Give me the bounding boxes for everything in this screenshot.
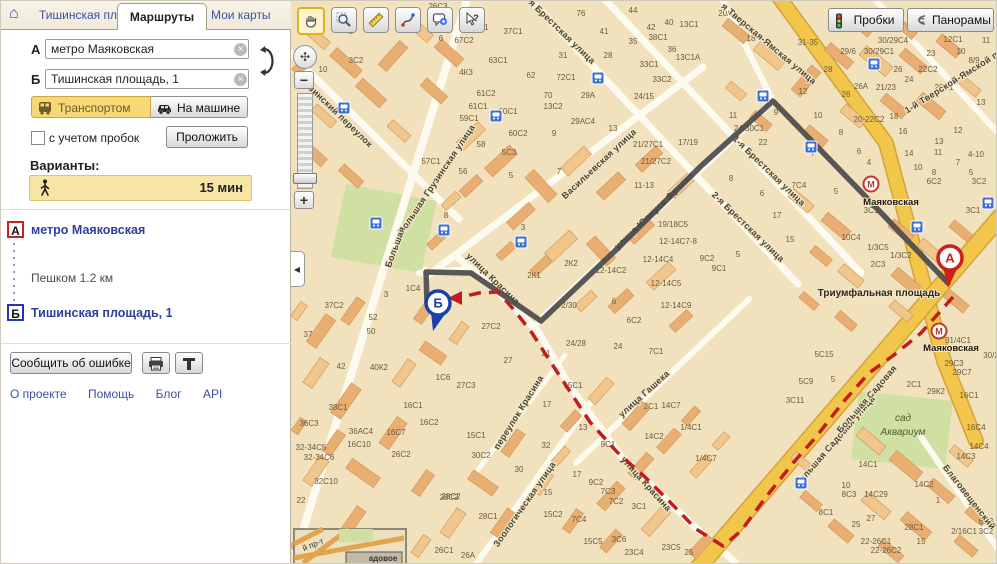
building-label: 6С2 bbox=[627, 316, 642, 325]
place-label: Аквариум bbox=[880, 427, 926, 438]
pedestrian-icon bbox=[38, 179, 52, 197]
building-label: 57С1 bbox=[421, 157, 441, 166]
building-label: 32 bbox=[542, 441, 551, 450]
building bbox=[810, 245, 833, 266]
building-label: 26А bbox=[461, 551, 476, 560]
building-label: 27С2 bbox=[481, 322, 501, 331]
building-label: 5 bbox=[831, 375, 836, 384]
building-label: 15С1 bbox=[466, 431, 486, 440]
building-label: 11 bbox=[934, 148, 943, 157]
building-label: 17 bbox=[773, 211, 782, 220]
building-label: 5С15 bbox=[814, 350, 834, 359]
building-label: 2К1 bbox=[527, 271, 541, 280]
building-label: 26 bbox=[842, 90, 851, 99]
building-label: 3С1 bbox=[632, 502, 647, 511]
comment-balloon-icon bbox=[432, 12, 448, 28]
building-label: 56 bbox=[459, 167, 468, 176]
building-label: 17 bbox=[543, 400, 552, 409]
building-label: 28С1 bbox=[904, 523, 924, 532]
building-label: 20-22С2 bbox=[854, 115, 885, 124]
building-label: 70 bbox=[544, 91, 553, 100]
building-label: 6 bbox=[439, 34, 444, 43]
building-label: 1 bbox=[936, 496, 941, 505]
building-label: 29С3 bbox=[944, 359, 964, 368]
map-canvas[interactable]: 125103С226С3667С267С137С163С14К361С261С1… bbox=[291, 1, 997, 564]
building-label: 3С2 bbox=[349, 56, 364, 65]
building-label: 5С9 bbox=[799, 377, 814, 386]
building-label: 24/28 bbox=[566, 339, 587, 348]
building-label: 67С2 bbox=[454, 36, 474, 45]
building-label: 16С7 bbox=[386, 428, 406, 437]
panoramas-button[interactable]: Панорамы bbox=[907, 8, 994, 32]
building-label: 28 bbox=[824, 65, 833, 74]
building-label: 35 bbox=[629, 37, 638, 46]
building-label: 3 bbox=[384, 290, 389, 299]
transport-stop-icon[interactable] bbox=[592, 72, 604, 84]
building-label: 16С10 bbox=[347, 440, 371, 449]
building-label: 21/23 bbox=[876, 83, 897, 92]
svg-text:М: М bbox=[867, 180, 875, 190]
street-label: 2-я Брестская улица bbox=[710, 190, 787, 265]
to-input[interactable] bbox=[45, 69, 249, 89]
building bbox=[355, 78, 386, 108]
building-label: 31 bbox=[559, 51, 568, 60]
building-label: 37С1 bbox=[503, 27, 523, 36]
zoom-select-tool-button[interactable] bbox=[331, 7, 357, 33]
building-label: 1/4С1 bbox=[680, 423, 702, 432]
swap-points-icon[interactable] bbox=[257, 45, 283, 77]
building-label: 30/29С1 bbox=[864, 47, 895, 56]
transport-stop-icon[interactable] bbox=[911, 221, 923, 233]
link-api[interactable]: API bbox=[203, 387, 222, 401]
building-label: 5С3 bbox=[502, 148, 517, 157]
building bbox=[828, 519, 854, 543]
building-label: 14С3 bbox=[956, 452, 976, 461]
building-label: 13 bbox=[609, 124, 618, 133]
building-label: 8 bbox=[932, 168, 937, 177]
building-label: 6 bbox=[612, 297, 617, 306]
svg-text:?: ? bbox=[473, 13, 479, 23]
place-label: сад bbox=[895, 413, 912, 424]
building-label: 37С2 bbox=[324, 301, 344, 310]
building bbox=[387, 120, 411, 143]
zoom-in-button[interactable]: + bbox=[294, 191, 314, 209]
building-label: 50 bbox=[367, 327, 376, 336]
building-label: 15С2 bbox=[543, 510, 563, 519]
variant-duration: 15 мин bbox=[199, 180, 243, 195]
route-dotted-connector bbox=[13, 243, 15, 301]
building-label: 38С1 bbox=[648, 33, 668, 42]
building-label: 5 bbox=[969, 168, 974, 177]
route-sidebar: ⌂ Тишинская пло Мои карты Маршруты А × Б… bbox=[1, 1, 291, 564]
building-label: 31-35 bbox=[798, 38, 819, 47]
building-label: 6 bbox=[857, 147, 862, 156]
building-label: 29С7 bbox=[952, 368, 972, 377]
building-label: 14С2 bbox=[644, 432, 664, 441]
link-about[interactable]: О проекте bbox=[10, 387, 67, 401]
car-icon bbox=[156, 100, 173, 116]
building-label: 2К2 bbox=[564, 259, 578, 268]
feedback-tool-button[interactable] bbox=[427, 7, 453, 33]
building-label: 16С1 bbox=[403, 401, 423, 410]
building-label: 17 bbox=[573, 470, 582, 479]
metro-label: Маяковская bbox=[863, 197, 919, 208]
building-label: 16С1 bbox=[959, 391, 979, 400]
building-label: 16С4 bbox=[966, 423, 986, 432]
cursor-question-icon: ? bbox=[464, 12, 480, 28]
building-label: 1С6 bbox=[436, 373, 451, 382]
building-label: 27 bbox=[504, 356, 513, 365]
traffic-checkbox-label: с учетом пробок bbox=[49, 131, 139, 145]
building-label: 12С1 bbox=[943, 35, 963, 44]
zoom-out-button[interactable]: − bbox=[294, 71, 314, 89]
building-label: 10 bbox=[319, 65, 328, 74]
building-label: 5 bbox=[834, 187, 839, 196]
building-label: 76 bbox=[577, 9, 586, 18]
building bbox=[712, 432, 730, 451]
building-label: 13С1 bbox=[679, 20, 699, 29]
mode-car-button[interactable]: На машине bbox=[151, 96, 248, 118]
building-label: 6 bbox=[760, 189, 765, 198]
building-label: 17/19 bbox=[678, 138, 699, 147]
building-label: 13 bbox=[579, 423, 588, 432]
building bbox=[949, 220, 973, 242]
building-label: 30С2 bbox=[471, 451, 491, 460]
building-label: 16 bbox=[899, 127, 908, 136]
building-label: 15 bbox=[917, 537, 926, 546]
building-label: 22 bbox=[759, 138, 768, 147]
building bbox=[419, 341, 447, 365]
mode-car-label: На машине bbox=[177, 101, 240, 115]
building-label: 30/2 bbox=[983, 351, 997, 360]
building bbox=[725, 81, 746, 101]
building-label: 61С2 bbox=[476, 89, 496, 98]
building-label: 40К2 bbox=[370, 363, 389, 372]
building-label: 8С1 bbox=[819, 508, 834, 517]
building-label: 1/3С2 bbox=[890, 251, 912, 260]
building-label: 4 bbox=[867, 158, 872, 167]
transport-stop-icon[interactable] bbox=[757, 90, 769, 102]
building bbox=[575, 290, 597, 312]
building-label: 18 bbox=[890, 112, 899, 121]
building-label: 27С3 bbox=[456, 381, 476, 390]
building-label: 14С29 bbox=[864, 490, 888, 499]
building-label: 14С1 bbox=[858, 460, 878, 469]
divider bbox=[1, 343, 291, 344]
footer-links: О проекте Помощь Блог API bbox=[10, 387, 240, 401]
building bbox=[392, 359, 416, 388]
svg-text:А: А bbox=[945, 251, 955, 266]
building bbox=[544, 230, 577, 262]
building bbox=[411, 469, 434, 496]
transport-stop-icon[interactable] bbox=[338, 102, 350, 114]
clear-to-icon[interactable]: × bbox=[234, 73, 247, 86]
building-label: 10 bbox=[957, 47, 966, 56]
building-label: 19/18С5 bbox=[658, 220, 689, 229]
report-error-button[interactable]: Сообщить об ошибке bbox=[10, 352, 132, 374]
ruler-icon bbox=[368, 12, 384, 28]
yandex-maps-app: 125103С226С3667С267С137С163С14К361С261С1… bbox=[0, 0, 997, 564]
building-label: 14С7 bbox=[661, 401, 681, 410]
building bbox=[799, 292, 819, 311]
building-label: 27 bbox=[867, 514, 876, 523]
waypoint-b-badge: Б bbox=[7, 304, 24, 321]
route-tool-button[interactable] bbox=[395, 7, 421, 33]
waypoint-a-badge: А bbox=[7, 221, 24, 238]
building-label: 10С4 bbox=[841, 233, 861, 242]
traffic-button-label: Пробки bbox=[854, 13, 895, 27]
building-label: 52 bbox=[369, 313, 378, 322]
building-label: 28С1 bbox=[478, 512, 498, 521]
clear-from-icon[interactable]: × bbox=[234, 43, 247, 56]
walk-distance-note: Пешком 1.2 км bbox=[31, 271, 113, 285]
panoramas-button-label: Панорамы bbox=[932, 13, 991, 27]
building bbox=[459, 175, 483, 198]
print-button[interactable] bbox=[142, 352, 170, 374]
compass-button[interactable]: ✣ bbox=[293, 45, 317, 69]
building-label: 12 bbox=[799, 87, 808, 96]
map-toolbar: ? bbox=[297, 7, 485, 35]
building-label: 10 bbox=[814, 111, 823, 120]
building-label: 3С1 bbox=[966, 206, 981, 215]
building-label: 38С1 bbox=[328, 403, 348, 412]
building-label: 16С2 bbox=[419, 418, 439, 427]
tab-routes[interactable]: Маршруты bbox=[117, 3, 207, 30]
building-label: 59С1 bbox=[459, 114, 479, 123]
building-label: 24 bbox=[614, 342, 623, 351]
building-label: 30/29С4 bbox=[878, 36, 909, 45]
building bbox=[303, 358, 329, 389]
building-label: 4К3 bbox=[459, 68, 473, 77]
bus-icon bbox=[37, 100, 53, 116]
building-label: 3С2 bbox=[972, 177, 987, 186]
building-label: 2С1 bbox=[907, 380, 922, 389]
building-label: 30 bbox=[515, 465, 524, 474]
building-label: 26С2 bbox=[391, 450, 411, 459]
building-label: 11 bbox=[982, 36, 991, 45]
sidebar-collapse-button[interactable]: ◀ bbox=[290, 251, 305, 287]
building-label: 8С3 bbox=[842, 490, 857, 499]
build-route-button[interactable]: Проложить bbox=[166, 126, 248, 148]
building-label: 25 bbox=[685, 548, 694, 557]
pan-tool-button[interactable] bbox=[297, 7, 325, 35]
building-label: 6С2 bbox=[927, 177, 942, 186]
building-label: 63С1 bbox=[488, 56, 508, 65]
building-label: 40 bbox=[665, 18, 674, 27]
building-label: 15 bbox=[544, 488, 553, 497]
building-label: 8 bbox=[729, 174, 734, 183]
building bbox=[835, 310, 858, 331]
building-label: 22С2 bbox=[918, 65, 938, 74]
building bbox=[669, 310, 693, 333]
building-label: 10 bbox=[914, 163, 923, 172]
zoom-slider-handle[interactable] bbox=[293, 173, 317, 184]
tab-place[interactable]: Тишинская пло bbox=[39, 8, 124, 22]
route-variant-item[interactable]: 15 мин bbox=[29, 175, 252, 201]
building-label: 24/15 bbox=[634, 92, 655, 101]
building bbox=[596, 172, 625, 201]
building-label: 24 bbox=[905, 75, 914, 84]
building-label: 26А bbox=[854, 82, 869, 91]
building bbox=[440, 508, 466, 539]
t-tool-icon bbox=[182, 357, 196, 371]
building bbox=[291, 301, 307, 320]
building-label: 7С1 bbox=[649, 347, 664, 356]
building-label: 7 bbox=[956, 158, 961, 167]
building-label: 2С3 bbox=[871, 260, 886, 269]
building-label: 22 bbox=[297, 496, 306, 505]
link-help[interactable]: Помощь bbox=[88, 387, 134, 401]
traffic-light-icon bbox=[834, 13, 844, 29]
building bbox=[468, 470, 499, 496]
building-label: 36С3 bbox=[299, 419, 319, 428]
building-label: 32-34С5 bbox=[296, 443, 327, 452]
tab-bar: ⌂ Тишинская пло Мои карты Маршруты bbox=[1, 1, 291, 30]
building-label: 15С5 bbox=[583, 537, 603, 546]
building-label: 42 bbox=[647, 23, 656, 32]
transport-stop-icon[interactable] bbox=[515, 236, 527, 248]
building-label: 42 bbox=[337, 362, 346, 371]
building-label: 14С2 bbox=[914, 480, 934, 489]
place-label: Триумфальная площадь bbox=[818, 287, 941, 299]
building-label: 10 bbox=[842, 481, 851, 490]
transport-stop-icon[interactable] bbox=[795, 477, 807, 489]
building-label: 12 bbox=[954, 126, 963, 135]
hand-icon bbox=[303, 13, 319, 29]
map-graphics: 125103С226С3667С267С137С163С14К361С261С1… bbox=[291, 1, 997, 564]
building-label: 4-10 bbox=[968, 150, 985, 159]
building-label: 9С1 bbox=[712, 264, 727, 273]
building-label: 72С1 bbox=[556, 73, 576, 82]
building-label: 33С1 bbox=[639, 60, 659, 69]
building-label: 23С4 bbox=[624, 548, 644, 557]
route-pin-Б[interactable]: Б bbox=[426, 291, 450, 331]
from-point-label: А bbox=[31, 42, 40, 57]
metro-label: Маяковская bbox=[923, 343, 979, 354]
widget-button[interactable] bbox=[175, 352, 203, 374]
tab-my-maps[interactable]: Мои карты bbox=[211, 8, 271, 22]
building bbox=[496, 241, 516, 260]
building-label: 60С2 bbox=[508, 129, 528, 138]
transport-stop-icon[interactable] bbox=[805, 141, 817, 153]
building-label: 32С10 bbox=[314, 477, 338, 486]
building-label: 14 bbox=[905, 149, 914, 158]
mode-transit-label: Транспортом bbox=[58, 101, 131, 115]
building-label: 22-26С2 bbox=[871, 546, 902, 555]
street-label: 1-я Брестская улица bbox=[731, 134, 808, 209]
building bbox=[341, 297, 365, 326]
building-label: 1С4 bbox=[406, 284, 421, 293]
building bbox=[378, 40, 408, 71]
building-label: 2С1 bbox=[644, 402, 659, 411]
building-label: 3С11 bbox=[786, 396, 805, 405]
street-label: улица Красина bbox=[464, 251, 522, 307]
transport-stop-icon[interactable] bbox=[868, 58, 880, 70]
building-label: 44 bbox=[629, 6, 638, 15]
building-label: 8 bbox=[839, 128, 844, 137]
building-label: 26 bbox=[894, 65, 903, 74]
building-label: 3С6 bbox=[612, 535, 627, 544]
street-label: Зоологическая улица bbox=[491, 459, 558, 549]
building-label: 23 bbox=[927, 49, 936, 58]
building-label: 11-13 bbox=[634, 181, 654, 190]
building-label: 36АС4 bbox=[349, 427, 374, 436]
metro-icon[interactable]: М bbox=[864, 177, 879, 192]
mode-transit-button[interactable]: Транспортом bbox=[31, 96, 151, 118]
help-cursor-tool-button[interactable]: ? bbox=[459, 7, 485, 33]
transport-stop-icon[interactable] bbox=[982, 197, 994, 209]
overview-minimap[interactable]: й пр-тадовое bbox=[294, 529, 406, 564]
building-label: 37 bbox=[304, 330, 313, 339]
building-label: 15 bbox=[786, 235, 795, 244]
building-label: 13С1А bbox=[676, 53, 701, 62]
building-label: 9С2 bbox=[589, 478, 604, 487]
building-label: 21/27С2 bbox=[641, 157, 672, 166]
transport-stop-icon[interactable] bbox=[438, 224, 450, 236]
waypoint-b-link[interactable]: Тишинская площадь, 1 bbox=[31, 306, 173, 320]
building-label: 12-14С4 bbox=[643, 255, 674, 264]
building-label: 8 bbox=[444, 211, 449, 220]
from-input[interactable] bbox=[45, 39, 249, 59]
building bbox=[943, 289, 969, 313]
traffic-checkbox[interactable] bbox=[31, 131, 45, 145]
link-blog[interactable]: Блог bbox=[156, 387, 182, 401]
building-label: 29А bbox=[581, 91, 596, 100]
divider bbox=[1, 209, 291, 210]
waypoint-a-link[interactable]: метро Маяковская bbox=[31, 223, 145, 237]
building-label: 5 bbox=[736, 250, 741, 259]
building bbox=[588, 377, 614, 404]
svg-text:М: М bbox=[935, 327, 943, 337]
transport-stop-icon[interactable] bbox=[490, 110, 502, 122]
home-icon[interactable]: ⌂ bbox=[9, 5, 19, 23]
building bbox=[954, 535, 978, 557]
ruler-tool-button[interactable] bbox=[363, 7, 389, 33]
building-label: 28 bbox=[604, 51, 613, 60]
svg-text:Б: Б bbox=[433, 296, 442, 311]
building-label: 7С3 bbox=[601, 487, 616, 496]
building bbox=[338, 164, 363, 188]
metro-icon[interactable]: М bbox=[932, 324, 947, 339]
building-label: 2/16С1 bbox=[951, 527, 977, 536]
traffic-button[interactable]: Пробки bbox=[828, 8, 904, 32]
transport-stop-icon[interactable] bbox=[370, 217, 382, 229]
building bbox=[346, 458, 381, 487]
building-label: 14С4 bbox=[969, 442, 989, 451]
minimap-label: адовое bbox=[369, 554, 398, 563]
panorama-icon bbox=[913, 13, 929, 29]
building-label: 7С4 bbox=[572, 515, 587, 524]
building-label: 28С2 bbox=[439, 493, 459, 502]
building-label: 21/27С1 bbox=[633, 140, 664, 149]
building-label: 5 bbox=[509, 171, 514, 180]
building-label: 29АС4 bbox=[571, 117, 596, 126]
building-label: 13 bbox=[935, 137, 944, 146]
building-label: 13С2 bbox=[543, 102, 563, 111]
building-label: 1/4С7 bbox=[695, 454, 717, 463]
building-label: 9С2 bbox=[700, 254, 715, 263]
building-label: 12-14С9 bbox=[661, 301, 692, 310]
magnifier-icon bbox=[336, 12, 352, 28]
building-label: 26С1 bbox=[434, 546, 454, 555]
building-label: 13 bbox=[977, 98, 986, 107]
building-label: 58 bbox=[477, 140, 486, 149]
building-label: 41 bbox=[600, 27, 609, 36]
building-label: 32-34С6 bbox=[304, 453, 335, 462]
building-label: 9 bbox=[552, 129, 557, 138]
building-label: 62 bbox=[527, 71, 536, 80]
building-label: 22-26С1 bbox=[861, 537, 892, 546]
